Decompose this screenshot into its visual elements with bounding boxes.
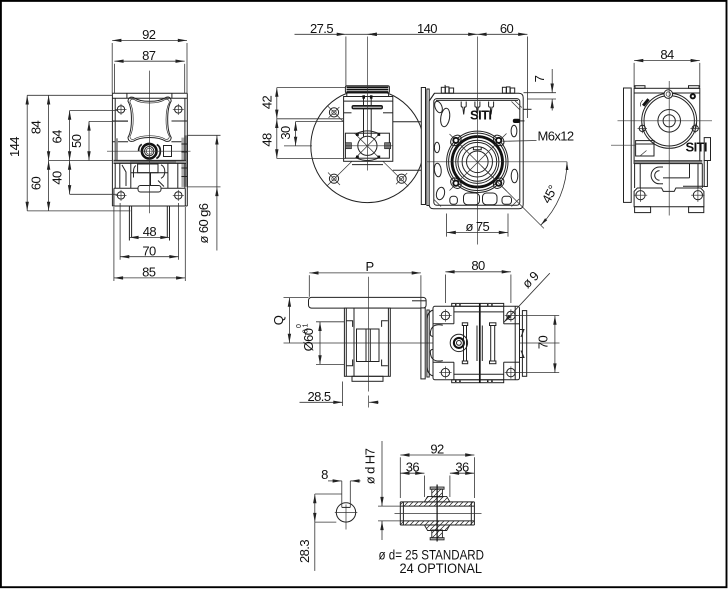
svg-text:36: 36 xyxy=(455,460,469,475)
svg-text:ø d H7: ø d H7 xyxy=(362,448,377,484)
svg-text:40: 40 xyxy=(50,171,65,185)
svg-text:-0.1: -0.1 xyxy=(303,323,310,335)
svg-text:Q: Q xyxy=(271,315,286,325)
svg-text:50: 50 xyxy=(69,134,84,148)
svg-text:42: 42 xyxy=(259,96,274,110)
svg-text:24 OPTIONAL: 24 OPTIONAL xyxy=(400,561,483,576)
svg-text:SITI: SITI xyxy=(470,107,491,122)
svg-text:70: 70 xyxy=(142,243,156,258)
svg-text:70: 70 xyxy=(536,336,551,350)
svg-text:60: 60 xyxy=(500,21,514,36)
svg-text:M6x12: M6x12 xyxy=(538,128,574,143)
svg-text:84: 84 xyxy=(29,121,44,135)
svg-text:28.5: 28.5 xyxy=(308,389,331,404)
svg-text:27.5: 27.5 xyxy=(310,21,333,36)
svg-text:7: 7 xyxy=(532,75,547,82)
svg-text:87: 87 xyxy=(142,48,156,63)
svg-text:8: 8 xyxy=(321,467,328,482)
svg-text:48: 48 xyxy=(143,224,157,239)
svg-text:36: 36 xyxy=(406,460,420,475)
svg-text:85: 85 xyxy=(142,265,156,280)
svg-text:P: P xyxy=(365,259,373,274)
svg-text:28.3: 28.3 xyxy=(297,540,312,563)
svg-text:60: 60 xyxy=(29,177,44,191)
svg-text:ø 60 g6: ø 60 g6 xyxy=(196,203,211,243)
svg-text:ø 75: ø 75 xyxy=(465,219,489,234)
svg-text:64: 64 xyxy=(50,130,65,144)
svg-text:92: 92 xyxy=(142,27,156,42)
svg-text:140: 140 xyxy=(417,21,437,36)
svg-text:48: 48 xyxy=(259,133,274,147)
svg-text:92: 92 xyxy=(430,442,444,457)
svg-text:144: 144 xyxy=(7,137,22,157)
svg-text:80: 80 xyxy=(471,258,485,273)
svg-text:84: 84 xyxy=(660,47,674,62)
svg-text:30: 30 xyxy=(278,126,293,140)
